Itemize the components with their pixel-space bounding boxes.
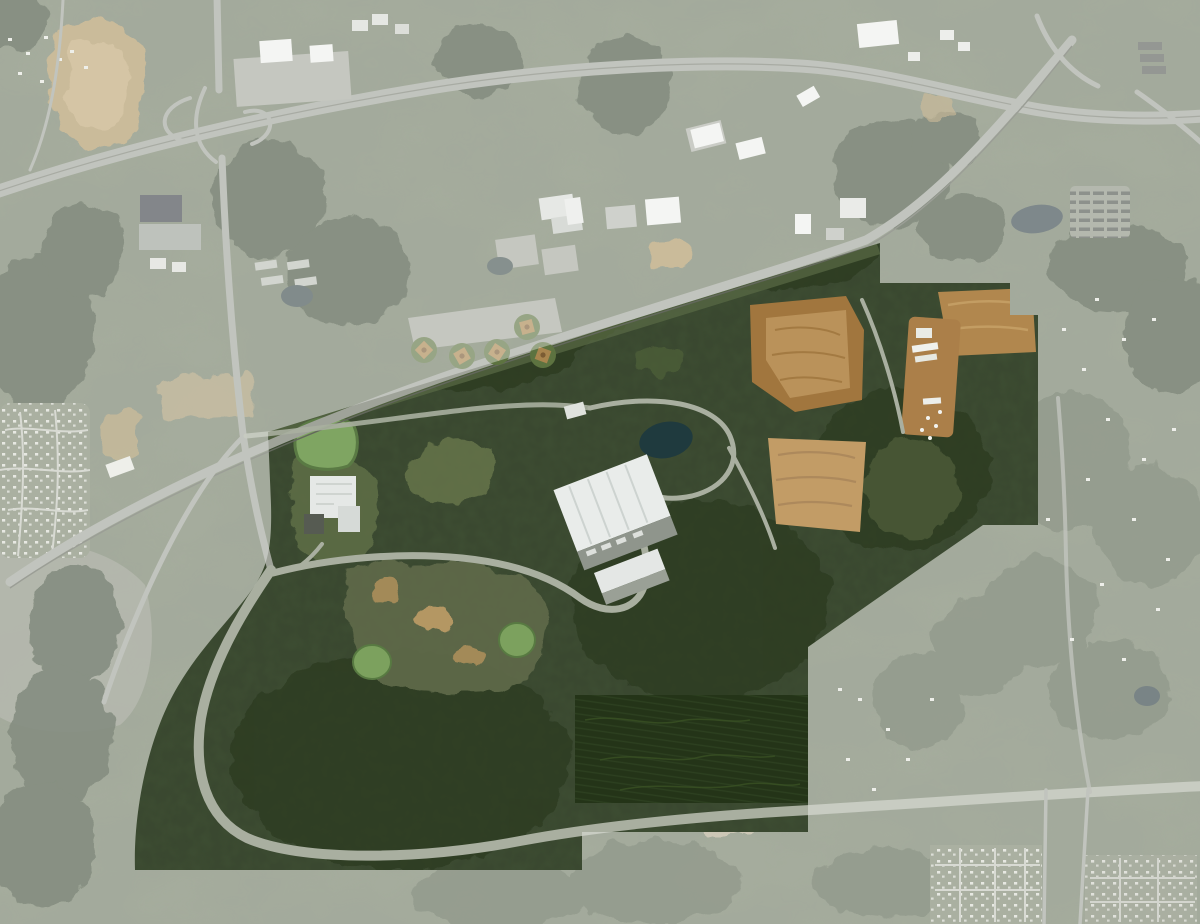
construction-laydown-yard [901, 316, 961, 440]
satellite-map-image [0, 0, 1200, 924]
satellite-map[interactable] [0, 0, 1200, 924]
small-green-pond-1 [499, 623, 535, 657]
small-green-pond-2 [353, 645, 391, 679]
pine-plantation [575, 695, 808, 803]
